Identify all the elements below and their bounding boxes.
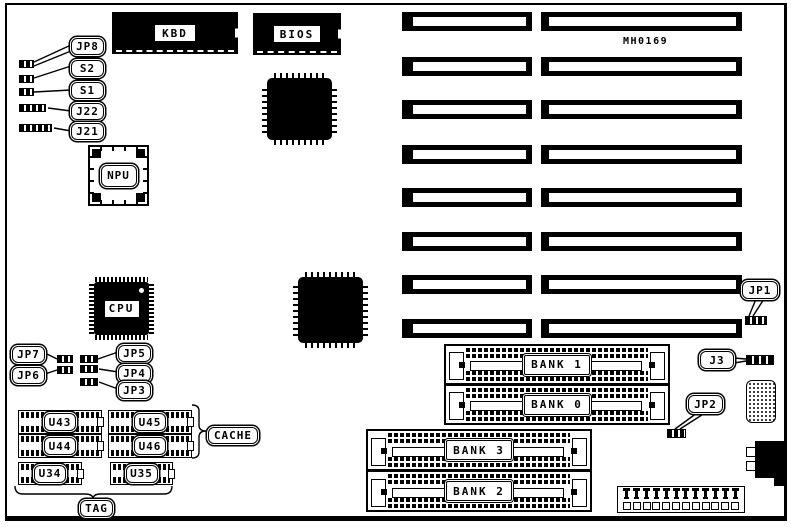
bank0-label: BANK 0: [524, 395, 590, 415]
kbd-chip-pin-row: [116, 50, 234, 52]
simm-key-bar: [508, 488, 564, 498]
cache-chip-u43: U43: [18, 410, 102, 434]
kbd-chip-notch: [235, 29, 239, 38]
power-pin: [682, 488, 689, 499]
jumper-label-jp1: JP1: [742, 281, 778, 299]
jumper-jp4: [80, 365, 98, 373]
cache-group-label: CACHE: [208, 427, 258, 444]
qfp-body: [298, 277, 363, 343]
simm-key-bar: [392, 488, 448, 498]
jumper-label-s2: S2: [71, 60, 104, 77]
isa-slot: [402, 319, 532, 338]
cpu-pins-bottom: [95, 335, 148, 340]
jumper-jp8: [19, 60, 34, 68]
power-terminal: [643, 502, 651, 510]
simm-clip: [449, 392, 464, 420]
simm-clip: [449, 352, 464, 380]
slot-opening: [549, 237, 736, 246]
slot-opening: [549, 150, 736, 159]
isa-slot: [541, 188, 742, 207]
slot-opening: [413, 17, 526, 26]
simm-key-bar: [586, 361, 642, 371]
bank3-label: BANK 3: [446, 440, 512, 460]
simm-clip: [572, 438, 587, 466]
power-pin: [623, 488, 630, 499]
jumper-label-jp7: JP7: [12, 346, 45, 363]
motherboard-diagram: KBD BIOS NPU CPU: [0, 0, 791, 527]
jumper-label-jp2: JP2: [688, 395, 723, 413]
simm-key-bar: [470, 361, 526, 371]
jumper-jp2: [667, 429, 686, 438]
jumper-label-jp4: JP4: [118, 365, 151, 382]
bios-chip: BIOS: [253, 13, 341, 55]
slot-opening: [413, 62, 526, 71]
bios-chip-label: BIOS: [273, 25, 321, 43]
part-number-text: MH0169: [623, 36, 668, 47]
cpu-pin1-dot: [139, 288, 144, 293]
isa-slot: [402, 12, 532, 31]
simm-clip: [572, 479, 587, 507]
jumper-label-s1: S1: [71, 82, 104, 99]
slot-opening: [549, 193, 736, 202]
isa-slot: [541, 232, 742, 251]
tag-chip-u34: U34: [18, 462, 82, 485]
cpu-chip: CPU: [89, 277, 154, 340]
slot-opening: [549, 324, 736, 333]
simm-assembly-upper: BANK 1 BANK 0: [444, 344, 670, 425]
bank2-label: BANK 2: [446, 481, 512, 501]
simm-key-bar: [508, 447, 564, 457]
power-terminal: [721, 502, 729, 510]
battery: [746, 380, 776, 423]
cache-chip-label: U46: [134, 437, 166, 455]
din-pin-block: [746, 461, 756, 471]
jumper-jp1: [745, 316, 767, 325]
npu-socket: NPU: [88, 145, 149, 206]
jumper-jp6: [57, 366, 73, 374]
cache-chip-label: U44: [44, 437, 76, 455]
tag-chip-label: U35: [126, 465, 158, 483]
power-terminal: [652, 502, 660, 510]
qfp-pins-left: [293, 284, 298, 336]
power-pin: [702, 488, 709, 499]
power-pin: [633, 488, 640, 499]
power-terminal-row: [623, 502, 739, 510]
jumper-label-jp8: JP8: [71, 38, 104, 55]
power-pin: [732, 488, 739, 499]
simm-key-bar: [392, 447, 448, 457]
jumper-label-jp5: JP5: [118, 345, 151, 362]
qfp-body: [267, 78, 332, 140]
jumper-jp7: [57, 355, 73, 363]
power-pin: [673, 488, 680, 499]
qfp-pins-right: [363, 284, 368, 336]
simm-socket-bank0: BANK 0: [444, 384, 670, 425]
connector-j3: [746, 355, 774, 365]
jumper-label-jp6: JP6: [12, 367, 45, 384]
chipset-qfp-lower: [293, 272, 368, 348]
npu-label: NPU: [101, 165, 137, 187]
power-terminal: [662, 502, 670, 510]
simm-key-bar: [470, 401, 526, 411]
power-pin-row: [623, 488, 739, 499]
isa-slot: [402, 100, 532, 119]
bank1-label: BANK 1: [524, 355, 590, 375]
slot-opening: [413, 193, 526, 202]
keyboard-din-connector-step: [774, 476, 787, 486]
cache-chip-u44: U44: [18, 434, 102, 458]
power-terminal: [731, 502, 739, 510]
bios-chip-notch: [338, 30, 342, 39]
power-terminal: [682, 502, 690, 510]
socket-corner: [136, 149, 145, 158]
simm-clip: [371, 438, 386, 466]
cpu-pins-top: [95, 277, 148, 282]
cache-chip-u45: U45: [108, 410, 192, 434]
bios-chip-pin-row: [257, 51, 337, 53]
isa-slot: [402, 275, 532, 294]
jumper-label-j21: J21: [71, 123, 104, 140]
qfp-pins-top: [305, 272, 356, 277]
simm-clip: [371, 479, 386, 507]
power-terminal: [672, 502, 680, 510]
slot-opening: [413, 105, 526, 114]
slot-opening: [549, 105, 736, 114]
power-pin: [653, 488, 660, 499]
tag-group-label: TAG: [80, 500, 113, 517]
isa-slot: [541, 100, 742, 119]
qfp-pins-right: [332, 85, 337, 133]
isa-slot: [541, 275, 742, 294]
power-terminal: [692, 502, 700, 510]
power-terminal: [623, 502, 631, 510]
simm-key-bar: [586, 401, 642, 411]
simm-assembly-lower: BANK 3 BANK 2: [366, 429, 592, 513]
dip-notch: [97, 417, 104, 427]
cpu-pins-right: [149, 283, 154, 334]
slot-opening: [549, 17, 736, 26]
power-pin: [712, 488, 719, 499]
din-pin-block: [746, 447, 756, 457]
dip-notch: [187, 417, 194, 427]
dip-notch: [97, 441, 104, 451]
socket-corner: [92, 193, 101, 202]
dip-notch: [77, 469, 84, 479]
qfp-pins-top: [274, 73, 325, 78]
power-terminal: [633, 502, 641, 510]
kbd-chip: KBD: [112, 12, 238, 54]
isa-slot: [402, 57, 532, 76]
isa-slot: [541, 57, 742, 76]
power-terminal: [702, 502, 710, 510]
isa-slot: [541, 145, 742, 164]
power-connector: [617, 486, 745, 513]
cache-chip-u46: U46: [108, 434, 192, 458]
power-pin: [692, 488, 699, 499]
slot-opening: [413, 324, 526, 333]
qfp-pins-left: [262, 85, 267, 133]
dip-notch: [187, 441, 194, 451]
jumper-j21: [19, 124, 52, 132]
jumper-j22: [19, 104, 46, 112]
isa-slot: [402, 188, 532, 207]
qfp-pins-bottom: [305, 343, 356, 348]
socket-corner: [136, 193, 145, 202]
simm-clip: [650, 352, 665, 380]
connector-label-j3: J3: [700, 351, 734, 369]
keyboard-din-connector: [755, 441, 786, 478]
isa-slot: [541, 12, 742, 31]
chipset-qfp-upper: [262, 73, 337, 145]
jumper-label-j22: J22: [71, 103, 104, 120]
isa-slot: [402, 232, 532, 251]
simm-clip: [650, 392, 665, 420]
cpu-pins-left: [89, 283, 94, 334]
power-pin: [663, 488, 670, 499]
slot-opening: [413, 237, 526, 246]
jumper-label-jp3: JP3: [118, 382, 151, 399]
power-pin: [722, 488, 729, 499]
cache-chip-label: U45: [134, 413, 166, 431]
slot-opening: [549, 280, 736, 289]
slot-opening: [413, 280, 526, 289]
jumper-jp5: [80, 355, 98, 363]
dip-notch: [168, 469, 175, 479]
cpu-label: CPU: [104, 300, 140, 318]
simm-socket-bank3: BANK 3: [366, 429, 592, 471]
jumper-s2: [19, 75, 34, 83]
qfp-pins-bottom: [274, 140, 325, 145]
isa-slot: [541, 319, 742, 338]
cache-chip-label: U43: [44, 413, 76, 431]
isa-slot: [402, 145, 532, 164]
slot-opening: [413, 150, 526, 159]
tag-chip-u35: U35: [110, 462, 173, 485]
tag-chip-label: U34: [34, 465, 66, 483]
socket-corner: [92, 149, 101, 158]
power-pin: [643, 488, 650, 499]
slot-opening: [549, 62, 736, 71]
kbd-chip-label: KBD: [154, 24, 196, 42]
simm-socket-bank2: BANK 2: [366, 470, 592, 512]
jumper-jp3: [80, 378, 98, 386]
power-terminal: [711, 502, 719, 510]
simm-socket-bank1: BANK 1: [444, 344, 670, 385]
jumper-s1: [19, 88, 34, 96]
